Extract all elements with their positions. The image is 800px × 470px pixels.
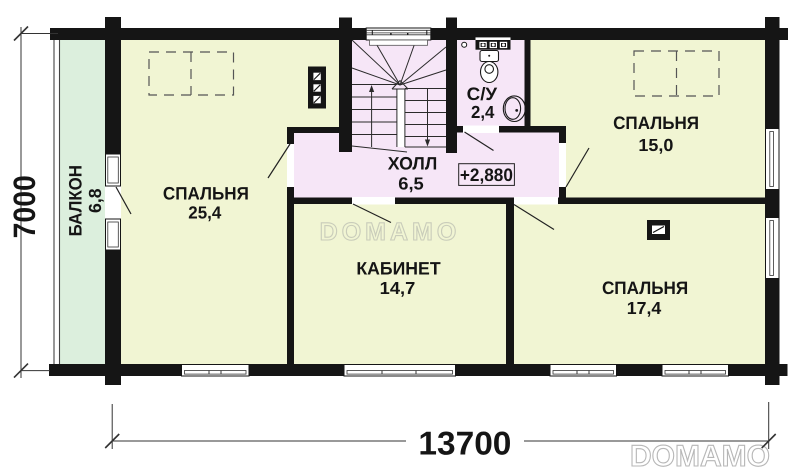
svg-text:СПАЛЬНЯ: СПАЛЬНЯ bbox=[163, 183, 249, 203]
svg-text:6,8: 6,8 bbox=[85, 188, 105, 213]
svg-text:15,0: 15,0 bbox=[638, 135, 673, 155]
svg-text:КАБИНЕТ: КАБИНЕТ bbox=[356, 259, 440, 279]
svg-text:13700: 13700 bbox=[418, 425, 511, 462]
svg-text:ХОЛЛ: ХОЛЛ bbox=[388, 153, 438, 173]
svg-text:17,4: 17,4 bbox=[627, 298, 662, 318]
svg-text:БАЛКОН: БАЛКОН bbox=[66, 165, 86, 236]
svg-text:2,4: 2,4 bbox=[471, 102, 495, 122]
svg-text:СПАЛЬНЯ: СПАЛЬНЯ bbox=[613, 113, 699, 133]
svg-text:DOMAMO: DOMAMO bbox=[630, 440, 770, 470]
svg-text:25,4: 25,4 bbox=[188, 203, 221, 223]
svg-text:6,5: 6,5 bbox=[398, 173, 424, 193]
svg-text:+2,880: +2,880 bbox=[460, 165, 513, 185]
svg-text:14,7: 14,7 bbox=[380, 278, 416, 298]
svg-text:СПАЛЬНЯ: СПАЛЬНЯ bbox=[602, 278, 688, 298]
svg-text:7000: 7000 bbox=[7, 175, 42, 238]
